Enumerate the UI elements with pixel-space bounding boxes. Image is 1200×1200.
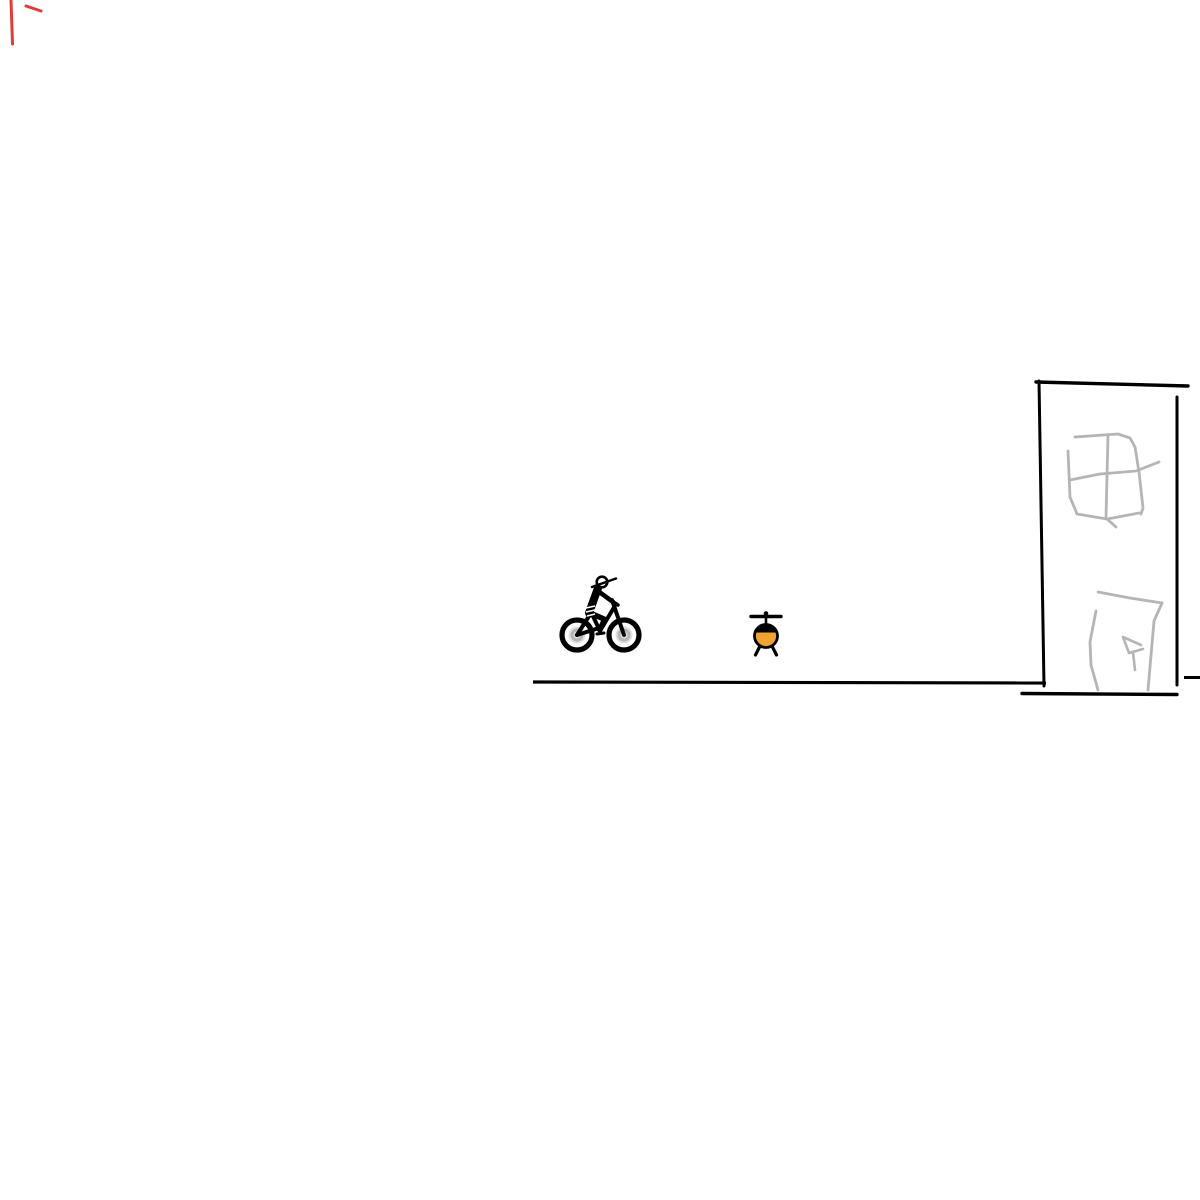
building-door-sketch (1090, 592, 1162, 690)
ground-line (533, 682, 1046, 683)
helicopter-drawing (751, 611, 781, 655)
cyclist-drawing (562, 577, 639, 650)
sketch-svg (0, 0, 1200, 1200)
drawing-canvas[interactable] (0, 0, 1200, 1200)
building-window-sketch (1068, 434, 1159, 527)
building-outline (1022, 381, 1200, 695)
red-pen-marks (11, 0, 41, 44)
